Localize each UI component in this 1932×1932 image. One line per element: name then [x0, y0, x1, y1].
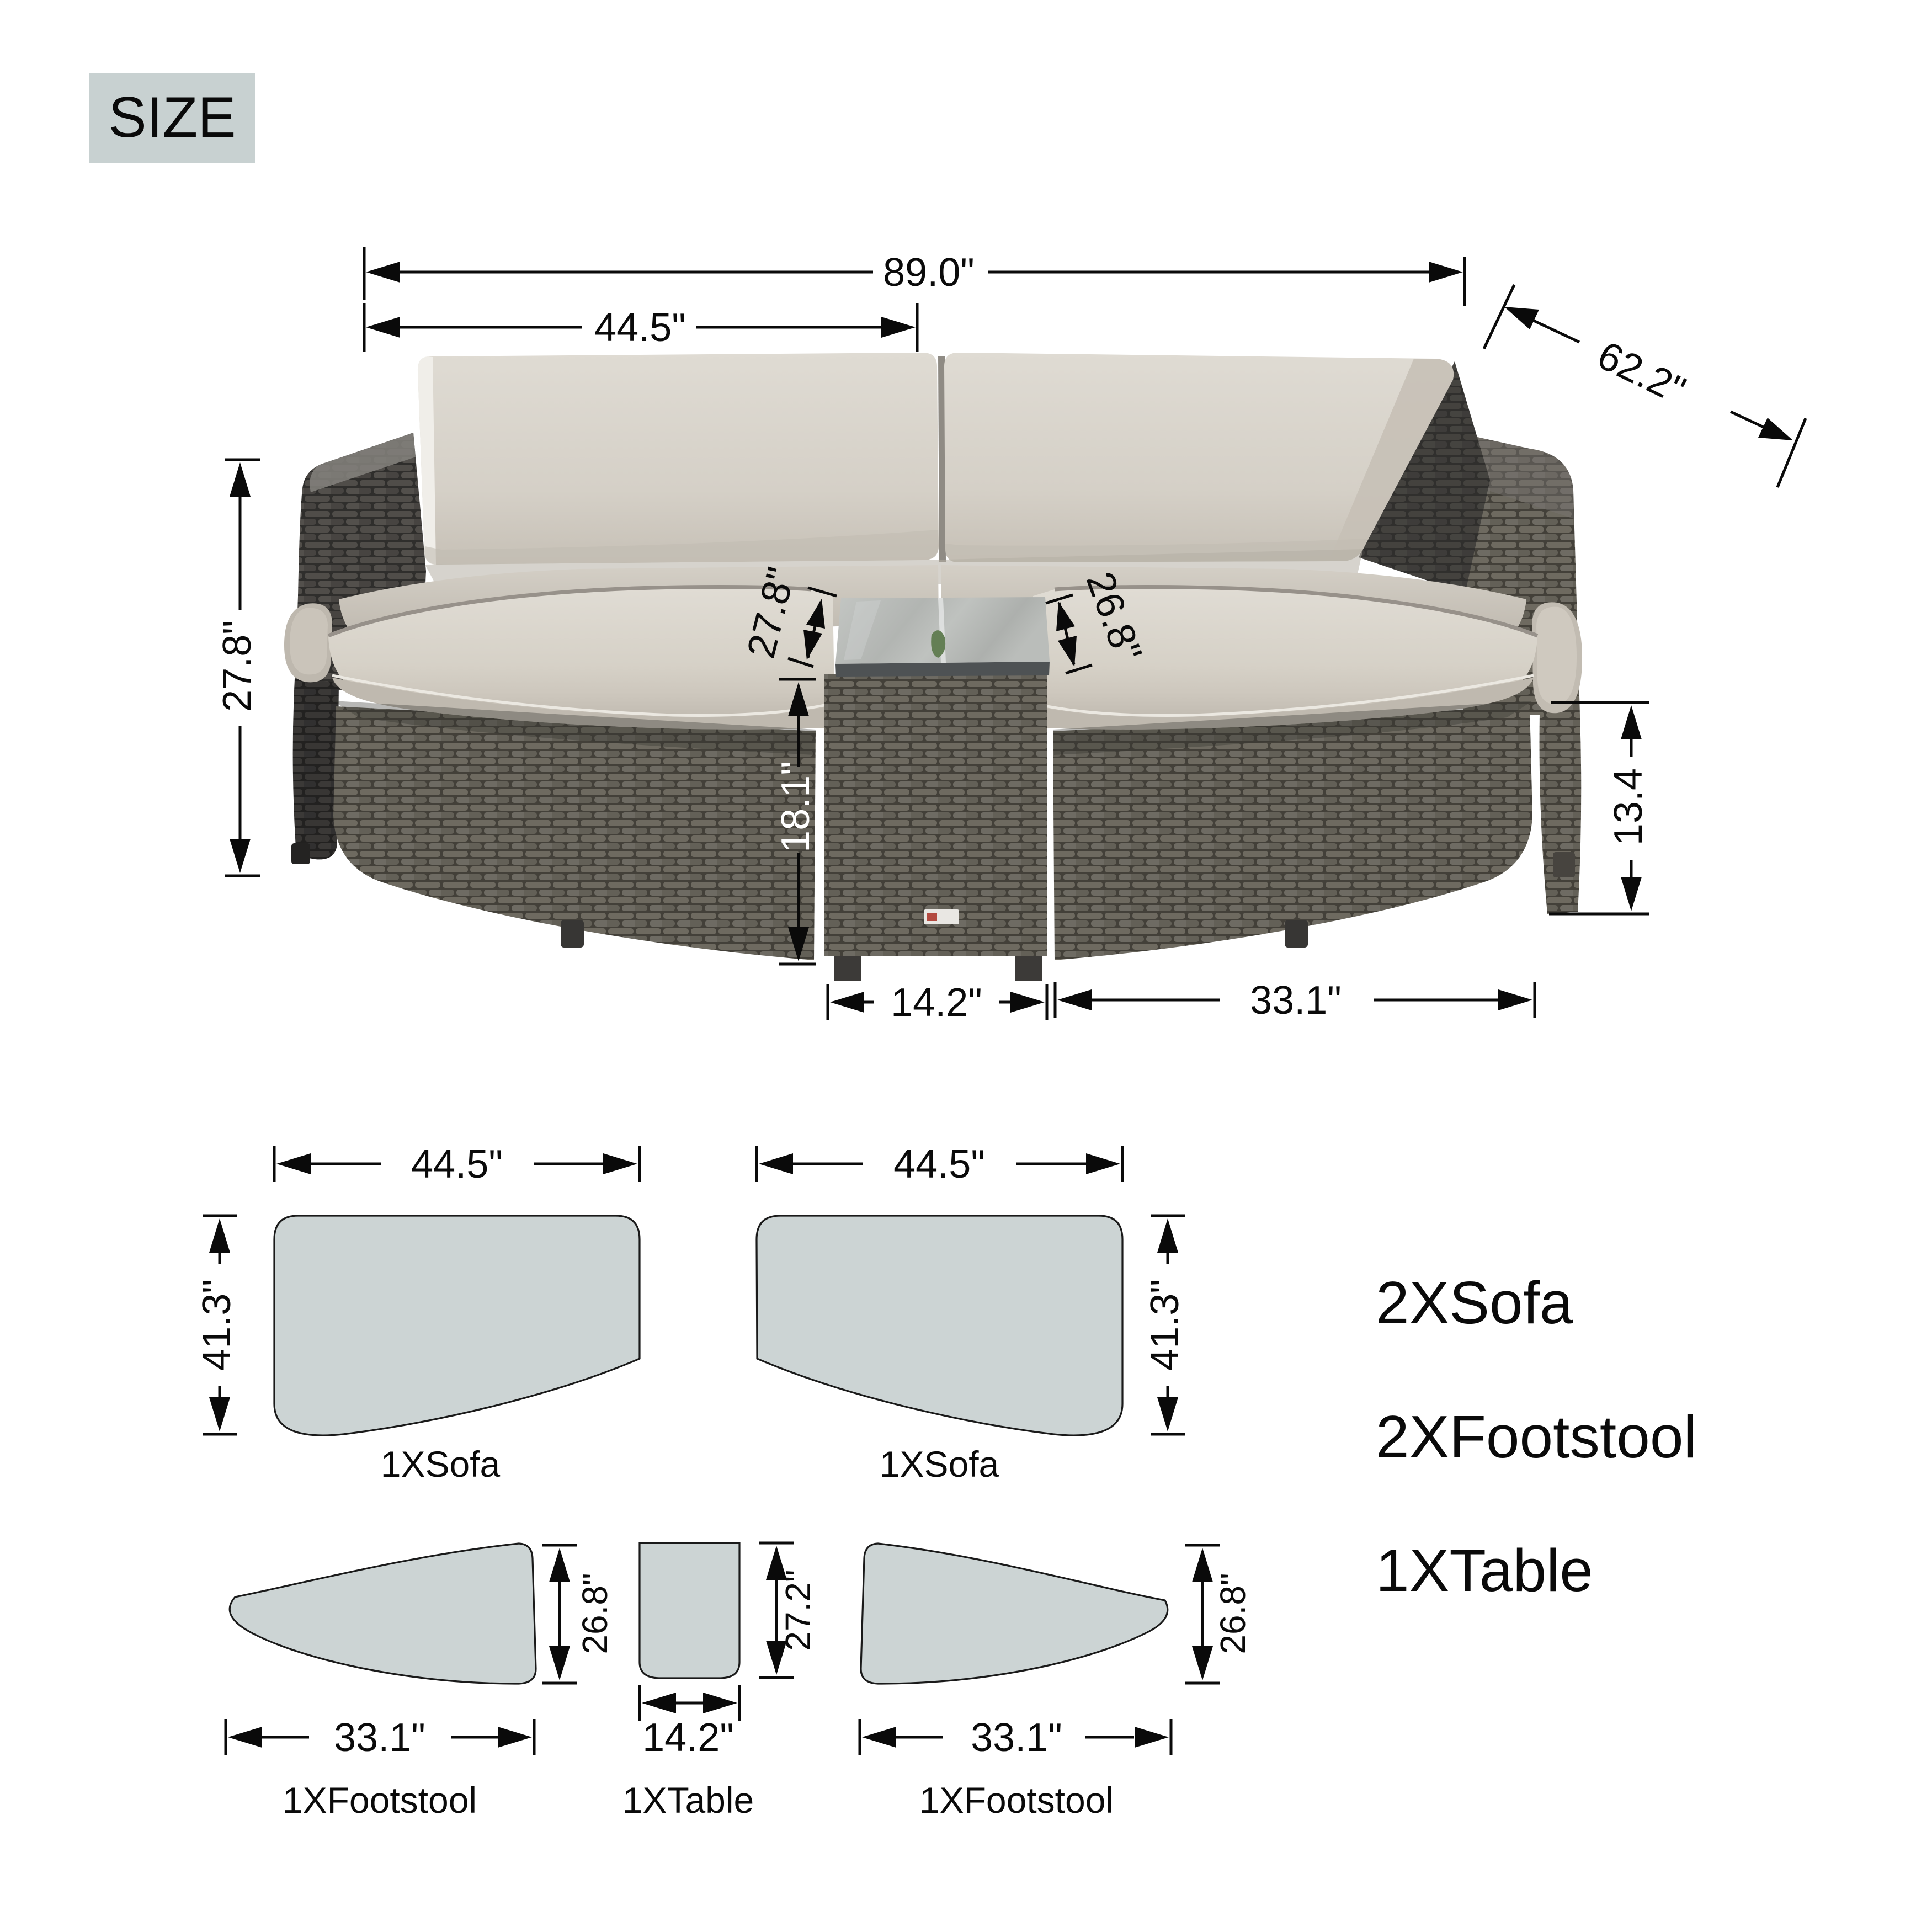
svg-text:14.2": 14.2"	[642, 1716, 734, 1760]
svg-text:33.1": 33.1"	[334, 1716, 425, 1760]
svg-text:26.8": 26.8"	[575, 1573, 615, 1654]
svg-text:41.3": 41.3"	[1143, 1279, 1187, 1371]
svg-text:27.8": 27.8"	[215, 620, 259, 712]
svg-text:13.4: 13.4	[1606, 768, 1651, 845]
svg-text:1XSofa: 1XSofa	[381, 1444, 501, 1484]
svg-text:33.1": 33.1"	[1250, 978, 1342, 1023]
svg-text:33.1": 33.1"	[971, 1716, 1062, 1760]
svg-text:18.1": 18.1"	[774, 761, 818, 853]
svg-text:2XFootstool: 2XFootstool	[1376, 1403, 1697, 1471]
svg-text:27.2": 27.2"	[778, 1569, 818, 1651]
svg-text:44.5": 44.5"	[411, 1142, 503, 1186]
svg-text:14.2": 14.2"	[891, 981, 982, 1025]
svg-text:1XTable: 1XTable	[622, 1780, 754, 1821]
svg-text:41.3": 41.3"	[195, 1279, 239, 1371]
svg-text:1XFootstool: 1XFootstool	[283, 1780, 477, 1821]
svg-text:1XSofa: 1XSofa	[880, 1444, 999, 1484]
svg-text:26.8": 26.8"	[1213, 1573, 1253, 1654]
svg-text:1XFootstool: 1XFootstool	[919, 1780, 1114, 1821]
svg-text:89.0": 89.0"	[883, 251, 975, 295]
svg-text:44.5": 44.5"	[893, 1142, 985, 1186]
svg-text:44.5": 44.5"	[594, 306, 686, 350]
svg-text:2XSofa: 2XSofa	[1376, 1269, 1573, 1337]
svg-text:SIZE: SIZE	[108, 86, 236, 150]
svg-text:1XTable: 1XTable	[1376, 1537, 1593, 1604]
